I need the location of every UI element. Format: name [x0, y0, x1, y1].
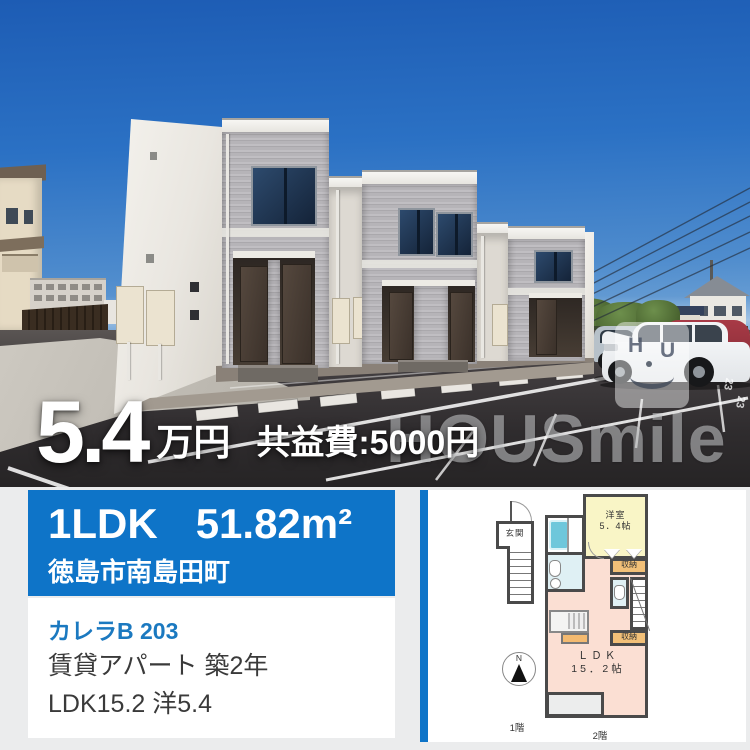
- post-box: [332, 298, 350, 344]
- floor2-label: 2階: [575, 731, 625, 743]
- door-swing-mark: [626, 549, 642, 558]
- bathtub: [549, 520, 569, 550]
- ldk-label: ＬＤＫ 15．2帖: [558, 650, 638, 676]
- toilet-2f-icon: [614, 585, 625, 600]
- unit2-door: [450, 292, 473, 362]
- window-mullion: [284, 168, 287, 224]
- intercom-box: [190, 310, 199, 320]
- alcove-pillar: [414, 286, 448, 362]
- post-box: [492, 304, 508, 346]
- price-overlay: 5.4 万円 共益費:5000円: [36, 380, 479, 470]
- wheel-hub: [693, 366, 705, 378]
- alcove-pillar: [268, 260, 280, 365]
- meter-box: [116, 286, 144, 344]
- white-car-pillar: [692, 325, 695, 342]
- window-mullion: [554, 252, 557, 281]
- genkan-label: 玄関: [496, 528, 534, 539]
- alcove-ceiling: [233, 251, 315, 258]
- meter-pipe: [158, 344, 161, 380]
- area-label: 51.82m²: [196, 500, 352, 547]
- unit1-floor-band: [222, 228, 329, 237]
- downpipe: [226, 134, 229, 364]
- building-end-wall: [585, 232, 594, 358]
- compass-n-label: N: [502, 653, 536, 664]
- meter-pipe: [127, 342, 130, 380]
- bath-divider: [567, 518, 569, 554]
- unit1-door: [240, 266, 268, 362]
- closet-a-label: 収納: [610, 560, 648, 570]
- unit2-door: [389, 292, 413, 360]
- window-mullion: [417, 210, 420, 254]
- property-photo[interactable]: 23 23 H U HOUSmile 5.4 万円 共益費:5000円: [0, 0, 750, 487]
- ldk-size: 15．2帖: [571, 663, 625, 675]
- unit2-window: [436, 212, 473, 257]
- door-swing-mark: [604, 549, 620, 558]
- balcony: [546, 692, 604, 717]
- window-mullion: [455, 214, 458, 255]
- meter-box: [146, 290, 175, 346]
- property-rooms: LDK15.2 洋5.4: [48, 684, 212, 720]
- unit3-window: [534, 250, 573, 283]
- layout-label: 1LDK: [48, 500, 158, 547]
- downpipe: [481, 236, 484, 358]
- alcove-ceiling: [529, 293, 582, 298]
- layout-area-line: 1LDK51.82m²: [48, 500, 352, 548]
- unit2-floor-band: [362, 260, 477, 268]
- building-side-wall: [114, 118, 222, 414]
- floor1-label: 1階: [492, 723, 542, 735]
- watermark-logo-u: U: [660, 339, 675, 363]
- unit3-door: [536, 299, 557, 355]
- property-category: 賃貸アパート 築2年: [48, 646, 268, 682]
- listing-screenshot: 23 23 H U HOUSmile 5.4 万円 共益費:5000円 1LDK…: [0, 0, 750, 750]
- unit2-window: [398, 208, 435, 256]
- unit1-door: [282, 264, 312, 364]
- entrance-door-leaf: [510, 501, 512, 521]
- ldk-name: ＬＤＫ: [578, 650, 619, 662]
- wall-vent: [150, 152, 157, 160]
- sink-icon: [550, 578, 561, 589]
- listing-summary-card[interactable]: 1LDK51.82m² 徳島市南島田町: [28, 490, 395, 596]
- watermark-logo-h: H: [628, 334, 643, 358]
- wall-vent: [146, 254, 154, 263]
- unit1-window: [251, 166, 317, 226]
- compass-needle: [511, 664, 527, 682]
- west-room-name: 洋室: [605, 510, 625, 520]
- listing-detail-card[interactable]: カレラB 203 賃貸アパート 築2年 LDK15.2 洋5.4: [28, 598, 395, 738]
- stall-number: 23: [733, 395, 747, 409]
- closet-b-label: 収納: [610, 632, 648, 642]
- entrance-step: [398, 360, 468, 372]
- price-value: 5.4: [36, 394, 146, 470]
- property-name-link[interactable]: カレラB 203: [48, 612, 178, 646]
- watermark-logo-smile: [630, 364, 674, 389]
- price-unit: 万円: [156, 412, 230, 466]
- kitchen-grid: [568, 613, 586, 629]
- toilet-icon: [549, 560, 561, 577]
- floorplan-accent-bar: [420, 490, 428, 742]
- kitchen-cabinet: [561, 633, 589, 644]
- west-room-label: 洋室 5．4帖: [583, 510, 648, 533]
- maintenance-fee: 共益費:5000円: [256, 415, 479, 464]
- address-label: 徳島市南島田町: [48, 552, 230, 589]
- west-room-size: 5．4帖: [599, 521, 631, 531]
- stairs-1f: [507, 546, 534, 604]
- stall-number: 23: [721, 377, 735, 391]
- intercom-box: [190, 282, 199, 292]
